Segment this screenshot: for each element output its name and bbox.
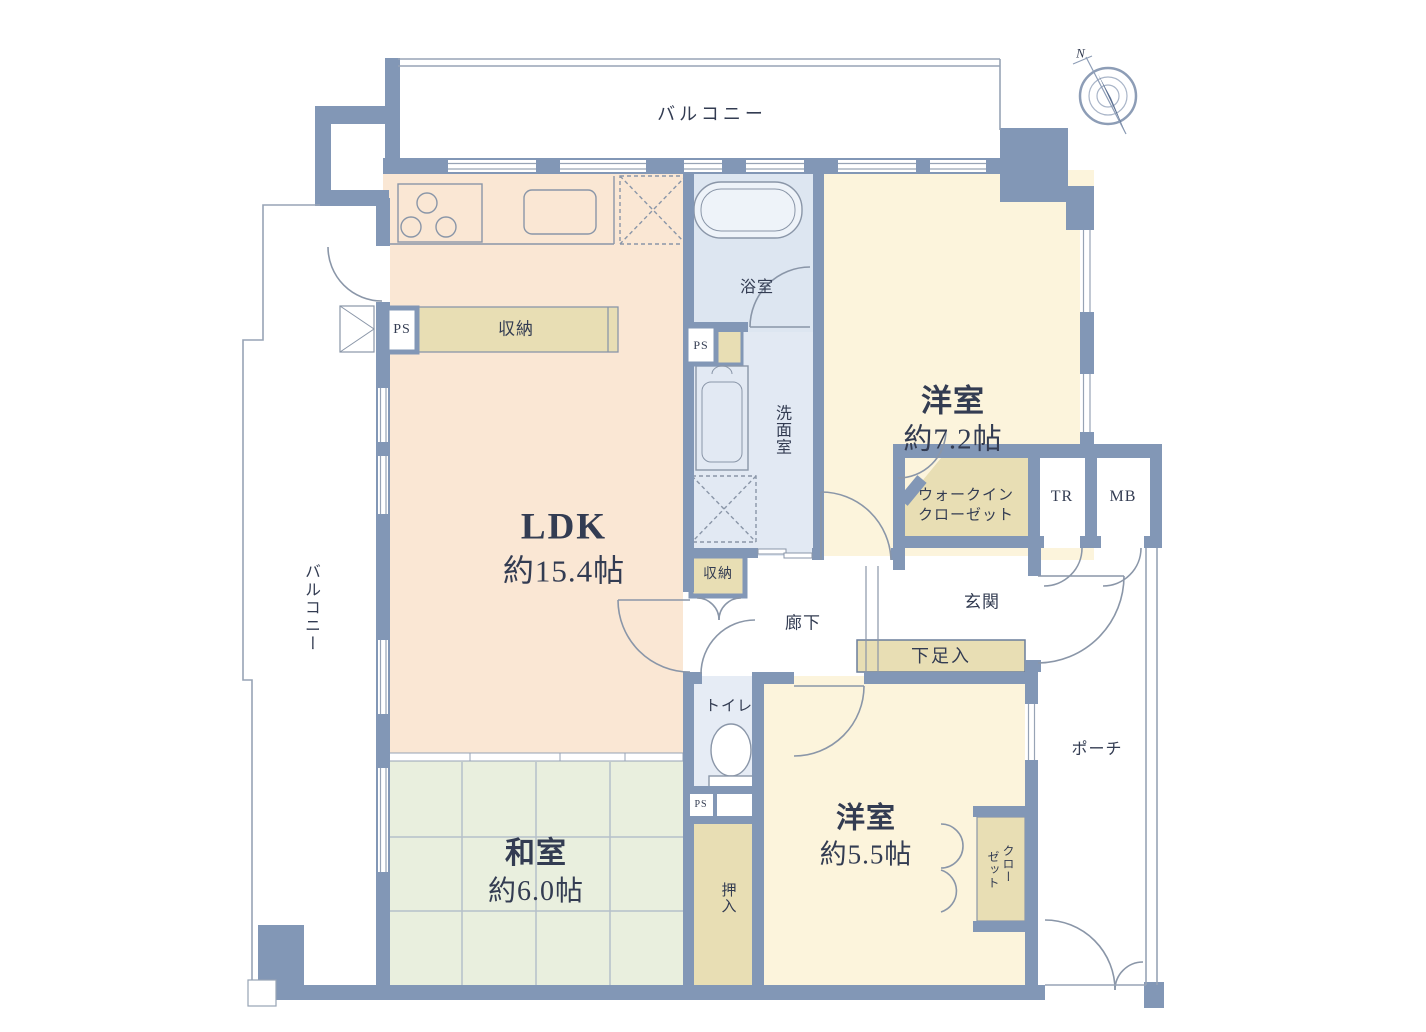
toilet-icon [711, 724, 751, 776]
ps-kitchen-label: PS [393, 323, 411, 337]
entrance-label: 玄関 [964, 594, 1000, 611]
ldk-area-label: 約15.4帖 [503, 556, 625, 587]
western-7-2-area-label: 約7.2帖 [903, 426, 1002, 455]
oshiire-label: 押入 [720, 882, 735, 914]
balcony-left-label: バルコニー [302, 563, 318, 653]
bath-label: 浴室 [740, 280, 774, 296]
closet-label-line1: クロー [1002, 845, 1014, 884]
japanese-area-label: 約6.0帖 [488, 878, 584, 906]
porch-label: ポーチ [1071, 742, 1122, 758]
compass-north-label: N [1076, 47, 1086, 60]
bathtub-icon [694, 182, 802, 238]
bath-side-cabinet [716, 328, 742, 364]
ldk-balcony-door-arc [328, 247, 382, 301]
ldk-name-label: LDK [521, 509, 607, 546]
porch-gate-arc [1045, 920, 1115, 990]
wic-label-line1: ウォークイン [918, 489, 1014, 504]
hallway-label: 廊下 [785, 615, 821, 632]
wic-label-line2: クローゼット [918, 509, 1014, 524]
closet-label-line2: ゼット [987, 851, 999, 890]
washroom-label: 洗面室 [773, 405, 789, 456]
shoe-cabinet-label: 下足入 [911, 647, 971, 665]
ps-bath-label: PS [693, 339, 708, 351]
sliding-partition [389, 753, 683, 761]
floorplan-drawing [0, 0, 1426, 1032]
japanese-floor [383, 756, 694, 990]
western-5-5-name-label: 洋室 [836, 805, 896, 834]
western-7-2-name-label: 洋室 [921, 386, 985, 417]
entrance-door-arc [1038, 576, 1124, 663]
compass-icon [1073, 56, 1136, 134]
ldk-storage-label: 収納 [498, 321, 534, 338]
meter-box-label: MB [1110, 489, 1137, 505]
trunk-room-label: TR [1051, 489, 1073, 505]
hall-storage-label: 収納 [703, 568, 733, 582]
ps-toilet-label: PS [694, 800, 707, 810]
toilet-label: トイレ [705, 700, 753, 715]
western-5-5-area-label: 約5.5帖 [820, 842, 913, 869]
balcony-top-label: バルコニー [657, 105, 767, 123]
floorplan-page: バルコニー バルコニー N LDK 約15.4帖 洋室 約7.2帖 洋室 約5.… [0, 0, 1426, 1032]
mb-door-arc [1103, 548, 1141, 586]
meter-box-icon [340, 306, 374, 352]
ldk-floor [383, 170, 694, 762]
japanese-name-label: 和室 [505, 839, 567, 869]
